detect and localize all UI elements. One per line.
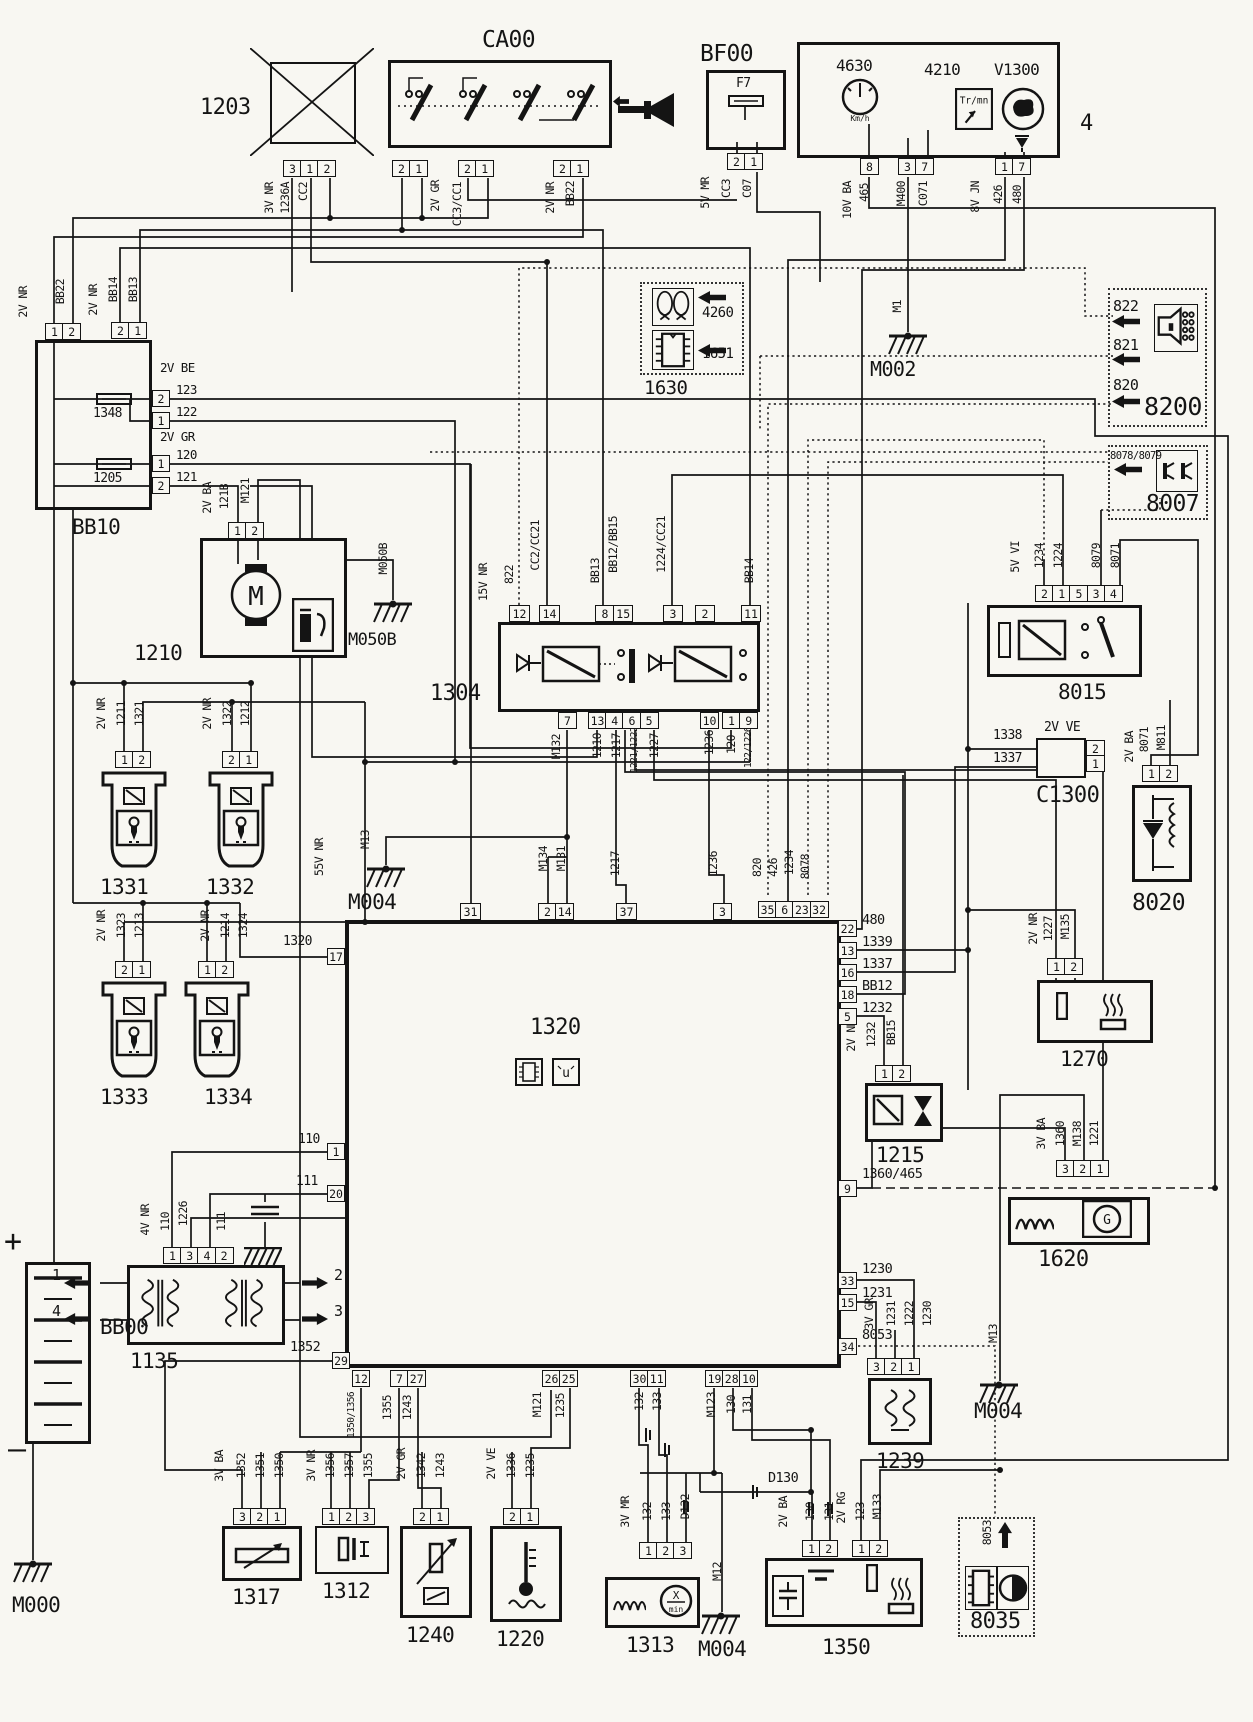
conn-bb10-b: 21 bbox=[111, 322, 145, 337]
battery-minus: – bbox=[8, 1436, 25, 1465]
junction-dot bbox=[362, 759, 368, 765]
svg-text:Km/h: Km/h bbox=[850, 114, 869, 123]
conn-1270: 12 bbox=[1047, 958, 1081, 973]
w-cc2-cc21: CC2/CC21 bbox=[530, 520, 541, 571]
conn-1304-11-pin-11: 11 bbox=[741, 605, 761, 622]
w-2v-ba-1350: 2V BA bbox=[778, 1496, 789, 1528]
w-1234-8015: 1234 bbox=[1034, 543, 1045, 568]
w-m13-right: M13 bbox=[988, 1324, 999, 1343]
svg-text:u: u bbox=[562, 1066, 570, 1081]
ecu-pin-18-pin-18: 18 bbox=[838, 986, 857, 1003]
id-1630: 1630 bbox=[644, 379, 687, 397]
w-2v-nr-1331: 2V NR bbox=[96, 698, 107, 730]
w-bb14: BB14 bbox=[108, 277, 119, 302]
conn-1350-b-pin-1: 1 bbox=[852, 1540, 871, 1557]
ecu-pin-31-pin-31: 31 bbox=[460, 903, 481, 920]
arrow-ht4-icon bbox=[64, 1313, 90, 1325]
w-1217-ecu: 1217 bbox=[610, 851, 621, 876]
ecu-pin-35-6-23-32-pin-23: 23 bbox=[792, 901, 811, 918]
w-426: 426 bbox=[993, 185, 1004, 204]
id-1304: 1304 bbox=[430, 684, 481, 705]
w-1352-pin29: 1352 bbox=[290, 1341, 320, 1354]
junction-dot bbox=[544, 259, 550, 265]
ecu-pin-19-28-10-pin-28: 28 bbox=[722, 1370, 741, 1387]
w-1211: 1211 bbox=[116, 701, 127, 726]
conn-cluster-17-pin-7: 7 bbox=[1012, 158, 1031, 175]
w-d132: D132 bbox=[680, 1494, 691, 1519]
w-m050b: M050B bbox=[378, 543, 389, 575]
ecu-pin-1: 1 bbox=[327, 1143, 343, 1158]
ecu-pin-12: 12 bbox=[352, 1370, 368, 1385]
id-1332: 1332 bbox=[206, 878, 254, 898]
ecu-pin-37-pin-37: 37 bbox=[616, 903, 637, 920]
w-120: 120 bbox=[176, 449, 197, 461]
ecu-chip-icon bbox=[515, 1058, 543, 1086]
w-131-pin10: 131 bbox=[742, 1395, 753, 1414]
deleted-component-cross-icon bbox=[250, 48, 374, 156]
w-m811: M811 bbox=[1156, 725, 1167, 750]
ecu-pin-15-pin-15: 15 bbox=[838, 1294, 857, 1311]
w-m13-upper: M13 bbox=[360, 830, 371, 849]
conn-bb10-120-pin-1: 1 bbox=[152, 455, 170, 472]
w-bb13-1304: BB13 bbox=[590, 558, 601, 583]
conn-8015-pin-1: 1 bbox=[1052, 585, 1071, 602]
w-1357: 1357 bbox=[344, 1453, 355, 1478]
w-3v-gr: 3V GR bbox=[864, 1298, 875, 1330]
conn-ca00-c-pin-2: 2 bbox=[553, 160, 572, 177]
svg-text:Tr/mn: Tr/mn bbox=[960, 96, 989, 107]
w-8071-8020: 8071 bbox=[1139, 727, 1150, 752]
ecu-pin-35-6-23-32-pin-6: 6 bbox=[775, 901, 794, 918]
capacitor-icon bbox=[249, 1200, 281, 1220]
ecu-pin-13: 13 bbox=[838, 942, 855, 957]
conn-1304-7-pin-7: 7 bbox=[558, 712, 577, 729]
ecu-pin-22-pin-22: 22 bbox=[838, 920, 857, 937]
conn-1350-a: 12 bbox=[802, 1540, 836, 1555]
id-1205: 1205 bbox=[93, 473, 122, 485]
conn-1331: 12 bbox=[115, 751, 149, 766]
ecu-pin-12-pin-12: 12 bbox=[352, 1370, 370, 1387]
id-4630: 4630 bbox=[836, 58, 872, 73]
id-v1300: V1300 bbox=[994, 62, 1039, 77]
w-1337-c1300: 1337 bbox=[993, 753, 1022, 765]
conn-bb10-120: 1 bbox=[152, 455, 168, 470]
sensor-1312-icon bbox=[327, 1534, 377, 1564]
ecu-pin-2-14-pin-14: 14 bbox=[555, 903, 574, 920]
w-1221-1222: 1221/1222 bbox=[630, 727, 639, 773]
g-motor-icon: G bbox=[1082, 1200, 1132, 1238]
ecu-pin-26-25-pin-25: 25 bbox=[559, 1370, 578, 1387]
module-8035-sensor-icon bbox=[998, 1567, 1028, 1609]
box-c1300 bbox=[1036, 738, 1086, 778]
w-cc3-cc1: CC3/CC1 bbox=[452, 182, 463, 226]
conn-1304-1-9-pin-9: 9 bbox=[739, 712, 758, 729]
conn-1215: 12 bbox=[875, 1065, 909, 1080]
w-8053-pin34: 8053 bbox=[862, 1329, 892, 1342]
conn-cluster-37-pin-7: 7 bbox=[915, 158, 934, 175]
arrow-8053-icon bbox=[998, 1522, 1012, 1548]
svg-text:min: min bbox=[669, 1605, 684, 1614]
w-3v-ba-1317: 3V BA bbox=[214, 1450, 225, 1482]
box-ecu-1320 bbox=[345, 920, 841, 1368]
ignition-coil-icon bbox=[134, 1272, 278, 1342]
w-m134: M134 bbox=[538, 846, 549, 871]
conn-1304-8-15-pin-8: 8 bbox=[595, 605, 615, 622]
conn-1304-7: 7 bbox=[558, 712, 575, 727]
w-820-8200: 820 bbox=[1113, 378, 1138, 392]
w-1227-1270: 1227 bbox=[1043, 916, 1054, 941]
conn-1270-pin-2: 2 bbox=[1064, 958, 1083, 975]
w-3v-ba-1620: 3V BA bbox=[1036, 1118, 1047, 1150]
conn-cluster-8: 8 bbox=[860, 158, 877, 173]
ecu-pin-26-25: 2625 bbox=[542, 1370, 576, 1385]
id-8015: 8015 bbox=[1058, 683, 1106, 703]
id-1312: 1312 bbox=[322, 1582, 370, 1602]
id-1210: 1210 bbox=[134, 644, 182, 664]
ecu-pin-16-pin-16: 16 bbox=[838, 964, 857, 981]
ecu-pin-31: 31 bbox=[460, 903, 479, 918]
w-123: 123 bbox=[176, 384, 197, 396]
w-8053-8035: 8053 bbox=[982, 1520, 993, 1545]
w-822-1304: 822 bbox=[504, 565, 515, 584]
conn-cluster-8-pin-8: 8 bbox=[860, 158, 879, 175]
warning-bulbs-icon bbox=[654, 290, 692, 324]
arrow-822-icon bbox=[1112, 315, 1140, 328]
diode-icon bbox=[1013, 134, 1031, 152]
tachometer-icon: Tr/mn bbox=[955, 88, 993, 130]
w-2v-nr-1333: 2V NR bbox=[96, 910, 107, 942]
w-2v-gr-1240: 2V GR bbox=[396, 1448, 407, 1480]
conn-cluster-17-pin-1: 1 bbox=[995, 158, 1014, 175]
w-2v-nr-1334: 2V NR bbox=[200, 910, 211, 942]
conn-1220-pin-2: 2 bbox=[503, 1508, 522, 1525]
w-bb15: BB15 bbox=[886, 1020, 897, 1045]
w-2v-nr-1270: 2V NR bbox=[1028, 913, 1039, 945]
w-1236-1304: 1236 bbox=[704, 730, 715, 755]
w-m132: M132 bbox=[551, 734, 562, 759]
conn-ca00-b: 21 bbox=[458, 160, 492, 175]
conn-1239-pin-2: 2 bbox=[884, 1358, 903, 1375]
conn-bb10-122: 1 bbox=[152, 412, 168, 427]
speedometer-icon: Km/h bbox=[836, 76, 884, 124]
w-1360-465: 1360/465 bbox=[862, 1168, 922, 1181]
conn-ca00-b-pin-2: 2 bbox=[458, 160, 477, 177]
id-bf00: BF00 bbox=[700, 44, 753, 66]
conn-1304-11: 11 bbox=[741, 605, 759, 620]
junction-dot bbox=[362, 919, 368, 925]
w-1210-wire: 1210 bbox=[592, 733, 603, 758]
ecu-pin-19-28-10-pin-10: 10 bbox=[739, 1370, 758, 1387]
conn-1135: 1342 bbox=[163, 1247, 232, 1262]
conn-1304-13465-pin-6: 6 bbox=[622, 712, 641, 729]
w-2v-rg: 2V RG bbox=[836, 1492, 847, 1524]
conn-c1300-pin-1: 1 bbox=[1086, 755, 1105, 772]
w-1224-8015: 1224 bbox=[1053, 543, 1064, 568]
arrow-ca00-icon bbox=[613, 96, 629, 107]
ecu-pin-5-pin-5: 5 bbox=[838, 1008, 857, 1025]
conn-8015-pin-5: 5 bbox=[1069, 585, 1088, 602]
junction-dot bbox=[399, 227, 405, 233]
conn-1304-13465-pin-5: 5 bbox=[640, 712, 659, 729]
conn-1239-pin-1: 1 bbox=[901, 1358, 920, 1375]
ecu-pin-7-27-pin-27: 27 bbox=[407, 1370, 426, 1387]
w-820-ecu: 820 bbox=[752, 858, 763, 877]
conn-1304-2: 2 bbox=[695, 605, 713, 620]
ht-lead-1: 1 bbox=[52, 1268, 60, 1282]
ecu-pin-22: 22 bbox=[838, 920, 855, 935]
w-15v-nr: 15V NR bbox=[478, 563, 489, 601]
w-bb14-1304: BB14 bbox=[744, 558, 755, 583]
fuse-f7-icon bbox=[728, 95, 764, 107]
conn-1620-pin-2: 2 bbox=[1073, 1160, 1092, 1177]
ecu-pin-33: 33 bbox=[838, 1272, 855, 1287]
ecu-pin-30-11-pin-11: 11 bbox=[647, 1370, 666, 1387]
conn-1620-pin-3: 3 bbox=[1056, 1160, 1075, 1177]
conn-ca00-b-pin-1: 1 bbox=[475, 160, 494, 177]
gnd-m004-upper: M004 bbox=[348, 893, 396, 913]
gnd-m004-right: M004 bbox=[974, 1402, 1022, 1422]
w-m138: M138 bbox=[1072, 1121, 1083, 1146]
w-1352-1317: 1352 bbox=[236, 1453, 247, 1478]
w-1232-1215: 1232 bbox=[866, 1022, 877, 1047]
w-2v-ve: 2V VE bbox=[486, 1448, 497, 1480]
w-1234-ecu: 1234 bbox=[784, 850, 795, 875]
conn-1332: 21 bbox=[222, 751, 256, 766]
w-1323: 1323 bbox=[116, 913, 127, 938]
inline-connector-icon bbox=[750, 1485, 760, 1499]
ecu-pin-18: 18 bbox=[838, 986, 855, 1001]
w-130-1350: 130 bbox=[805, 1502, 816, 1521]
conn-1304-13465-pin-4: 4 bbox=[605, 712, 624, 729]
conn-1304-3-pin-3: 3 bbox=[663, 605, 683, 622]
injector-1333-icon bbox=[101, 981, 167, 1085]
w-5v-vi: 5V VI bbox=[1010, 541, 1021, 573]
ecu-pin-33-pin-33: 33 bbox=[838, 1272, 857, 1289]
conn-bb10-123: 2 bbox=[152, 390, 168, 405]
ecu-pin-35-6-23-32: 3562332 bbox=[758, 901, 827, 916]
conn-8015-pin-3: 3 bbox=[1087, 585, 1106, 602]
ecu-pin-20: 20 bbox=[327, 1185, 343, 1200]
ecu-pin-34-pin-34: 34 bbox=[838, 1338, 857, 1355]
w-1360: 1360 bbox=[1055, 1121, 1066, 1146]
solenoid-1239-icon bbox=[878, 1386, 922, 1436]
conn-1334-pin-2: 2 bbox=[215, 961, 234, 978]
w-133-pin11: 133 bbox=[652, 1392, 663, 1411]
fuse-f7-label: F7 bbox=[736, 78, 750, 90]
id-1320: 1320 bbox=[530, 1018, 581, 1039]
id-1270: 1270 bbox=[1060, 1050, 1108, 1070]
gnd-m004-mid: M004 bbox=[698, 1640, 746, 1660]
ignition-switch-contacts-icon bbox=[392, 64, 608, 142]
module-8035-ic-icon bbox=[966, 1567, 996, 1609]
id-1215: 1215 bbox=[876, 1146, 924, 1166]
conn-8020: 12 bbox=[1142, 765, 1176, 780]
conn-bb10-a-pin-2: 2 bbox=[62, 323, 81, 340]
ground-m002-icon bbox=[887, 332, 929, 356]
w-122: 122 bbox=[176, 406, 197, 418]
double-relay-internals-icon bbox=[503, 625, 755, 709]
w-m123: M123 bbox=[706, 1392, 717, 1417]
w-121: 121 bbox=[176, 471, 197, 483]
w-m12: M12 bbox=[712, 1562, 723, 1581]
ecu-pin-2-14: 214 bbox=[538, 903, 572, 918]
ground-m004-upper-icon bbox=[365, 865, 407, 889]
id-1239: 1239 bbox=[876, 1452, 924, 1472]
fuel-pump-symbol-icon bbox=[292, 598, 334, 652]
conn-8015-pin-2: 2 bbox=[1035, 585, 1054, 602]
id-8007: 8007 bbox=[1146, 494, 1199, 516]
w-2v-nr-1332: 2V NR bbox=[202, 698, 213, 730]
conn-1304-12: 12 bbox=[509, 605, 528, 620]
ecu-pin-1-pin-1: 1 bbox=[327, 1143, 345, 1160]
junction-dot bbox=[419, 215, 425, 221]
arrow-ht1-icon bbox=[64, 1277, 90, 1289]
w-1350-1317: 1350 bbox=[274, 1453, 285, 1478]
svg-text:G: G bbox=[1103, 1213, 1111, 1228]
conn-1313-pin-2: 2 bbox=[656, 1542, 675, 1559]
conn-ca00-c-pin-1: 1 bbox=[570, 160, 589, 177]
conn-1331-pin-1: 1 bbox=[115, 751, 134, 768]
conn-1210: 12 bbox=[228, 522, 262, 537]
coolant-temp-sensor-icon bbox=[501, 1538, 551, 1612]
fuse-1205-icon bbox=[96, 458, 132, 470]
id-4210: 4210 bbox=[924, 62, 960, 77]
ecu-injection-icon: u bbox=[552, 1058, 580, 1086]
w-2v-ba-8020: 2V BA bbox=[1124, 731, 1135, 763]
conn-8015-pin-4: 4 bbox=[1104, 585, 1123, 602]
w-465: 465 bbox=[859, 183, 870, 202]
ecu-pin-9: 9 bbox=[838, 1180, 855, 1195]
conn-1239: 321 bbox=[867, 1358, 919, 1373]
ecu-pin-17: 17 bbox=[327, 948, 343, 963]
w-1214: 1214 bbox=[220, 913, 231, 938]
w-1230-pin33: 1230 bbox=[862, 1263, 892, 1276]
w-123-1350: 123 bbox=[855, 1502, 866, 1521]
arrow-821-icon bbox=[1112, 353, 1140, 366]
conn-8020-pin-2: 2 bbox=[1159, 765, 1178, 782]
fuse-1348-icon bbox=[96, 393, 132, 405]
conn-1313-pin-3: 3 bbox=[673, 1542, 692, 1559]
ht-lead-3: 3 bbox=[334, 1304, 342, 1318]
id-1240: 1240 bbox=[406, 1626, 454, 1646]
w-bb12-pin18: BB12 bbox=[862, 980, 892, 993]
w-1351: 1351 bbox=[255, 1453, 266, 1478]
w-110-coil: 110 bbox=[160, 1212, 171, 1231]
ecu-pin-7-27: 727 bbox=[390, 1370, 424, 1385]
id-8020: 8020 bbox=[1132, 893, 1185, 915]
conn-1304-1-9-pin-1: 1 bbox=[722, 712, 741, 729]
w-1338: 1338 bbox=[993, 730, 1022, 742]
w-1222-1239: 1222 bbox=[904, 1301, 915, 1326]
conn-bf00-pin-1: 1 bbox=[744, 153, 763, 170]
conn-1333-pin-1: 1 bbox=[132, 961, 151, 978]
id-1333: 1333 bbox=[100, 1088, 148, 1108]
w-m131: M131 bbox=[556, 846, 567, 871]
gnd-m000: M000 bbox=[12, 1596, 60, 1616]
w-3v-mr: 3V MR bbox=[620, 1496, 631, 1528]
air-temp-sensor-icon bbox=[411, 1538, 461, 1608]
gnd-m002: M002 bbox=[870, 360, 916, 379]
w-m133: M133 bbox=[872, 1494, 883, 1519]
w-122-1226: 122/1226 bbox=[744, 727, 753, 768]
conn-cluster-37-pin-3: 3 bbox=[898, 158, 917, 175]
w-1337-pin16: 1337 bbox=[862, 958, 892, 971]
id-8035: 8035 bbox=[970, 1612, 1021, 1633]
w-1224-cc21: 1224/CC21 bbox=[656, 516, 667, 573]
w-1236a: 1236A bbox=[280, 182, 291, 214]
conn-ca00-a-pin-1: 1 bbox=[409, 160, 428, 177]
conn-8020-pin-1: 1 bbox=[1142, 765, 1161, 782]
conn-1304-8-15: 815 bbox=[595, 605, 631, 620]
conn-1239-pin-3: 3 bbox=[867, 1358, 886, 1375]
id-1220: 1220 bbox=[496, 1630, 544, 1650]
idle-actuator-coil-icon bbox=[612, 1592, 646, 1614]
svg-text:M: M bbox=[248, 582, 264, 612]
junction-dot bbox=[204, 900, 210, 906]
battery-plus: + bbox=[4, 1228, 21, 1257]
conn-1331-pin-2: 2 bbox=[132, 751, 151, 768]
conn-1210-pin-2: 2 bbox=[245, 522, 264, 539]
ecu-pin-34: 34 bbox=[838, 1338, 855, 1353]
id-bb10: BB10 bbox=[72, 518, 120, 538]
id-8200: 8200 bbox=[1144, 395, 1202, 419]
fuel-pump-motor-icon: M bbox=[228, 564, 284, 626]
conn-bf00: 21 bbox=[727, 153, 761, 168]
w-2v-be: 2V BE bbox=[160, 362, 195, 374]
junction-dot bbox=[808, 1489, 814, 1495]
injector-1334-icon bbox=[184, 981, 250, 1085]
conn-1350-b: 12 bbox=[852, 1540, 886, 1555]
junction-dot bbox=[808, 1427, 814, 1433]
junction-dot bbox=[564, 834, 570, 840]
injector-1332-icon bbox=[208, 771, 274, 875]
conn-1304-12-pin-12: 12 bbox=[509, 605, 530, 622]
ecu-pin-9-pin-9: 9 bbox=[838, 1180, 857, 1197]
w-480: 480 bbox=[1012, 185, 1023, 204]
w-111-coil: 111 bbox=[216, 1212, 227, 1231]
id-1135: 1135 bbox=[130, 1352, 178, 1372]
conn-1135-pin-2: 2 bbox=[215, 1247, 234, 1264]
w-c07: C07 bbox=[742, 179, 753, 198]
conn-8015: 21534 bbox=[1035, 585, 1121, 600]
conn-1312-pin-2: 2 bbox=[339, 1508, 358, 1525]
ecu-pin-29-pin-29: 29 bbox=[332, 1352, 350, 1369]
w-1321: 1321 bbox=[134, 701, 145, 726]
w-3v-nr: 3V NR bbox=[264, 182, 275, 214]
w-1355-1312: 1355 bbox=[363, 1453, 374, 1478]
id-1331: 1331 bbox=[100, 878, 148, 898]
conn-1304-1-9: 19 bbox=[722, 712, 756, 727]
conn-1240: 21 bbox=[413, 1508, 447, 1523]
conn-1333-pin-2: 2 bbox=[115, 961, 134, 978]
conn-1220-pin-1: 1 bbox=[520, 1508, 539, 1525]
ecu-pin-5: 5 bbox=[838, 1008, 855, 1023]
w-8071: 8071 bbox=[1110, 543, 1121, 568]
w-1243-1240: 1243 bbox=[435, 1453, 446, 1478]
id-c1300: C1300 bbox=[1036, 786, 1099, 807]
conn-bb10-a-pin-1: 1 bbox=[45, 323, 64, 340]
inline-connector-icon bbox=[662, 1443, 672, 1457]
w-10v-ba: 10V BA bbox=[842, 181, 853, 219]
conn-1304-8-15-pin-15: 15 bbox=[613, 605, 633, 622]
id-1334: 1334 bbox=[204, 1088, 252, 1108]
conn-1313-pin-1: 1 bbox=[639, 1542, 658, 1559]
conn-1312: 123 bbox=[322, 1508, 374, 1523]
conn-1312-pin-3: 3 bbox=[356, 1508, 375, 1525]
w-1350-1356: 1350/1356 bbox=[347, 1392, 356, 1438]
w-132-1313: 132 bbox=[642, 1502, 653, 1521]
w-c071: C071 bbox=[918, 181, 929, 206]
